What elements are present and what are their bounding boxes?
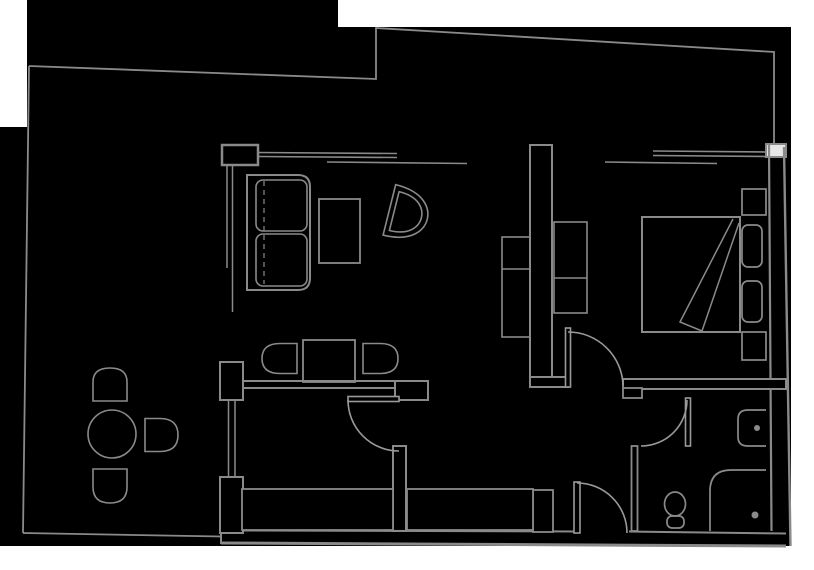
hall-door-pier — [395, 381, 428, 400]
floor-plan-image — [0, 0, 814, 570]
margin-bottom — [0, 546, 814, 570]
entry-closet-left — [242, 489, 393, 530]
entry-closet-right — [407, 489, 533, 530]
entry-side-wall — [533, 490, 553, 532]
central-wall — [530, 145, 552, 380]
entry-stub-wall — [393, 446, 406, 531]
balcony-pier-top — [220, 362, 243, 400]
margin-top-right — [338, 0, 814, 27]
entry-closets — [242, 489, 533, 530]
bathroom-left-wall — [632, 446, 638, 531]
shower-drain — [752, 512, 759, 519]
window-pier-living — [222, 145, 258, 165]
washbasin-drain — [754, 425, 760, 431]
bedroom-south-wall — [623, 379, 786, 389]
balcony-pier-bottom — [220, 477, 243, 533]
margin-right — [791, 0, 814, 570]
margin-top-left — [0, 0, 27, 127]
central-wall-foot — [530, 377, 568, 387]
floor-plan-svg — [0, 0, 814, 570]
bathroom-door-pier — [623, 388, 642, 398]
